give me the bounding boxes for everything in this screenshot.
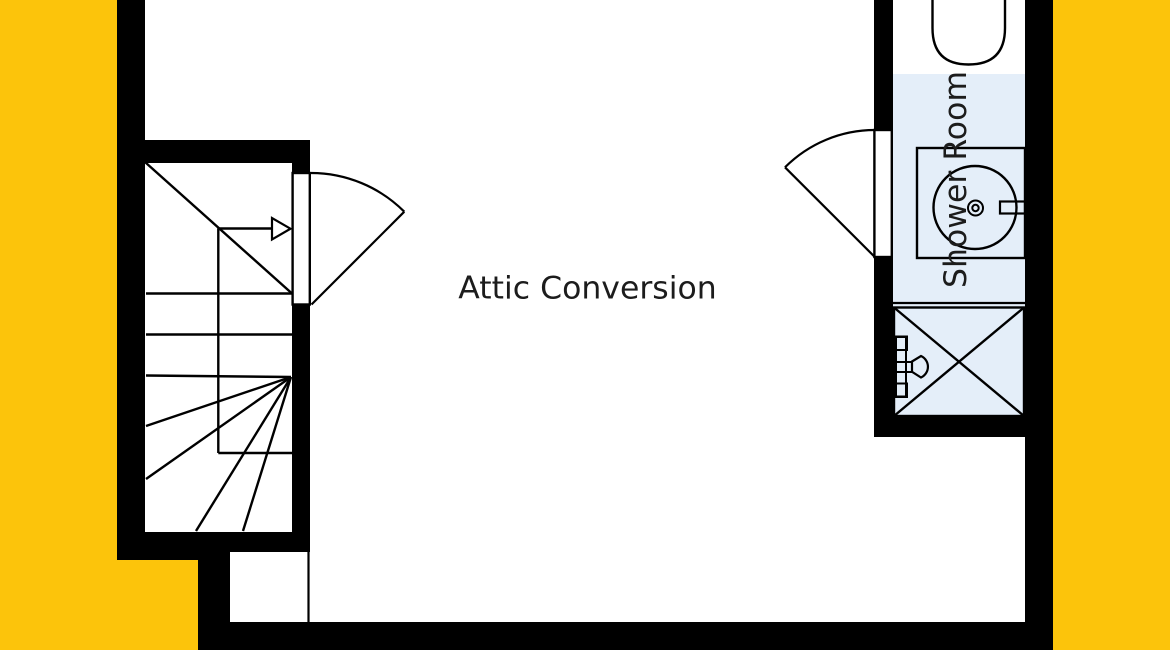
wall-bottom bbox=[230, 622, 1053, 650]
wall-stair-bottom bbox=[117, 532, 310, 552]
wall-stair-right-stub bbox=[292, 163, 310, 173]
yellow-margin-right bbox=[1053, 0, 1170, 650]
wall-stair-top bbox=[117, 140, 310, 163]
stair-door-leaf bbox=[293, 173, 310, 305]
attic-room-label: Attic Conversion bbox=[458, 271, 716, 307]
yellow-margin-left bbox=[0, 0, 117, 650]
floor-plan: Attic Conversion Shower Room bbox=[0, 0, 1170, 650]
wall-bottom-left-stub bbox=[198, 552, 230, 650]
wall-shower-left-lower bbox=[874, 257, 893, 437]
wall-left bbox=[117, 0, 145, 532]
wall-left-foot bbox=[117, 552, 198, 560]
yellow-margin-bottom-left bbox=[0, 560, 198, 650]
shower-room-label: Shower Room bbox=[938, 71, 974, 288]
shower-door-leaf bbox=[874, 130, 891, 257]
wall-stair-right bbox=[292, 305, 310, 552]
wall-shower-bottom bbox=[874, 417, 1025, 437]
wall-shower-left-upper bbox=[874, 0, 893, 130]
wall-right bbox=[1025, 0, 1053, 650]
